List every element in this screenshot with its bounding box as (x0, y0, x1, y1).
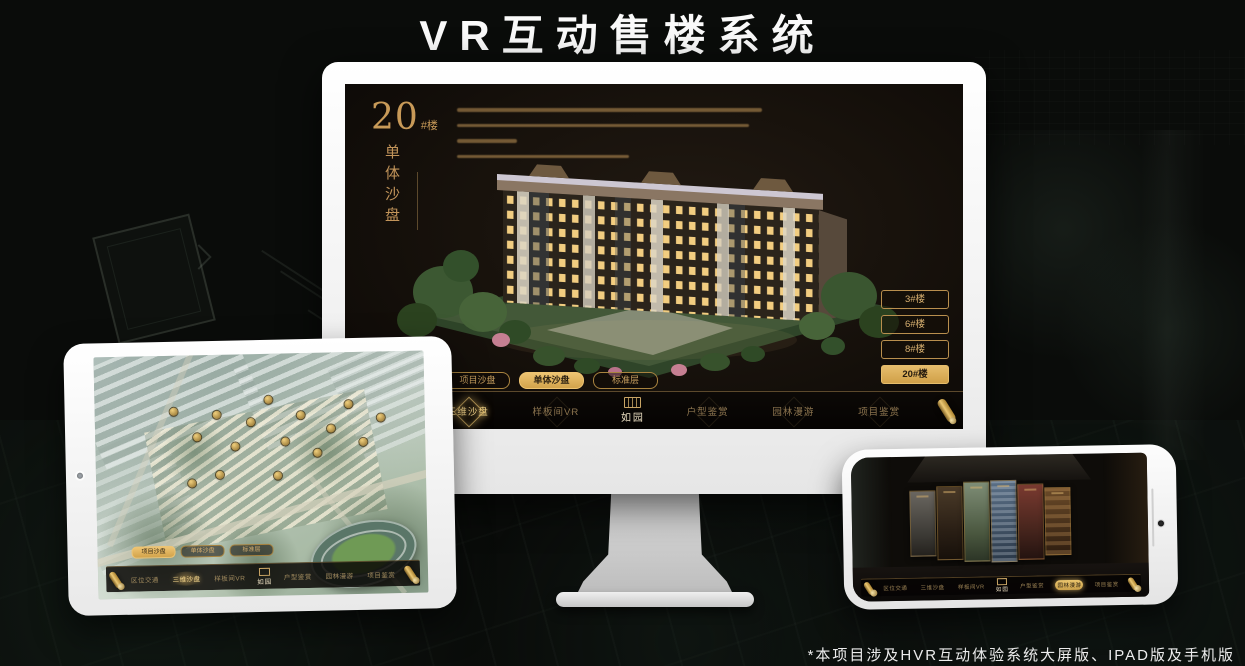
tablet-screen: 项目沙盘 单体沙盘 标准层 区位交通 三维沙盘 样板间VR 如园 户型鉴赏 园林… (93, 351, 428, 600)
background-city-grid (975, 50, 1245, 145)
scroll-icon[interactable] (108, 570, 124, 589)
camera-icon (1158, 520, 1164, 526)
phone-screen: 区位交通 三维沙盘 样板间VR 如园 户型鉴赏 园林漫游 项目鉴赏 (851, 453, 1149, 602)
background-scenery (985, 130, 1245, 460)
gallery-panel[interactable] (1044, 487, 1071, 555)
description-line (457, 108, 762, 112)
building-badge[interactable] (188, 479, 196, 487)
tab-standard-floor[interactable]: 标准层 (229, 544, 273, 557)
floor-button-20[interactable]: 20#楼 (881, 365, 949, 384)
brand-logo: 如园 (996, 578, 1009, 593)
nav-item-floorplan[interactable]: 户型鉴赏 (1018, 580, 1046, 590)
brand-logo: 如园 (621, 397, 645, 424)
tab-single-sandbox[interactable]: 单体沙盘 (180, 545, 224, 558)
brand-emblem-icon (624, 397, 641, 408)
scroll-icon[interactable] (863, 580, 876, 595)
nav-item-showflat-vr[interactable]: 样板间VR (956, 581, 987, 592)
tab-project-sandbox[interactable]: 项目沙盘 (445, 372, 510, 389)
nav-item-garden-roam[interactable]: 园林漫游 (770, 400, 816, 422)
building-3d-model (397, 150, 902, 385)
nav-item-location[interactable]: 区位交通 (129, 572, 161, 587)
gate-roof (907, 454, 1091, 483)
gallery-panel[interactable] (909, 490, 936, 556)
nav-item-project-view[interactable]: 项目鉴赏 (1093, 579, 1121, 589)
nav-item-project-view[interactable]: 项目鉴赏 (856, 400, 902, 422)
nav-item-project-view[interactable]: 项目鉴赏 (365, 567, 397, 582)
floor-button-3[interactable]: 3#楼 (881, 290, 949, 309)
building-number: 20 (371, 97, 419, 138)
nav-item-3d-sandbox[interactable]: 三维沙盘 (170, 571, 202, 586)
scroll-icon[interactable] (1127, 576, 1140, 591)
nav-item-showflat-vr[interactable]: 样板间VR (531, 400, 582, 422)
tab-single-sandbox[interactable]: 单体沙盘 (519, 372, 584, 389)
floor-button-group: 3#楼 6#楼 8#楼 20#楼 (881, 290, 949, 384)
tab-project-sandbox[interactable]: 项目沙盘 (131, 546, 175, 559)
gallery-panel[interactable] (1017, 483, 1044, 559)
footnote: *本项目涉及HVR互动体验系统大屏版、IPAD版及手机版 (808, 644, 1235, 665)
page-title: VR互动售楼系统 (0, 2, 1245, 63)
nav-item-floorplan[interactable]: 户型鉴赏 (282, 568, 314, 583)
gallery-panel[interactable] (990, 480, 1017, 562)
scroll-icon[interactable] (936, 398, 957, 424)
scroll-icon[interactable] (403, 564, 419, 583)
nav-item-3d-sandbox[interactable]: 三维沙盘 (919, 582, 947, 592)
gallery-panel[interactable] (936, 486, 963, 560)
tab-standard-floor[interactable]: 标准层 (593, 372, 658, 389)
nav-item-showflat-vr[interactable]: 样板间VR (212, 570, 247, 585)
view-tab-group: 项目沙盘 单体沙盘 标准层 (445, 372, 658, 389)
nav-item-garden-roam[interactable]: 园林漫游 (1055, 579, 1083, 589)
building-number-suffix: #楼 (421, 120, 438, 132)
monitor-base (556, 592, 754, 607)
background-plaque (92, 214, 216, 345)
nav-item-floorplan[interactable]: 户型鉴赏 (685, 400, 731, 422)
nav-item-location[interactable]: 区位交通 (881, 582, 909, 592)
description-line (457, 124, 749, 128)
brand-emblem-icon (259, 567, 270, 575)
floor-button-8[interactable]: 8#楼 (881, 340, 949, 359)
speaker-slit-icon (1151, 488, 1154, 546)
camera-icon (77, 473, 83, 479)
floor-button-6[interactable]: 6#楼 (881, 315, 949, 334)
phone-device: 区位交通 三维沙盘 样板间VR 如园 户型鉴赏 园林漫游 项目鉴赏 (842, 444, 1179, 610)
gallery-panel[interactable] (963, 481, 990, 561)
tablet-device: 项目沙盘 单体沙盘 标准层 区位交通 三维沙盘 样板间VR 如园 户型鉴赏 园林… (63, 336, 457, 616)
brand-logo-text: 如园 (996, 585, 1009, 593)
brand-logo: 如园 (257, 567, 272, 585)
nav-item-garden-roam[interactable]: 园林漫游 (323, 568, 355, 583)
brand-logo-text: 如园 (257, 575, 272, 585)
brand-logo-text: 如园 (621, 409, 645, 424)
description-line (457, 139, 517, 143)
